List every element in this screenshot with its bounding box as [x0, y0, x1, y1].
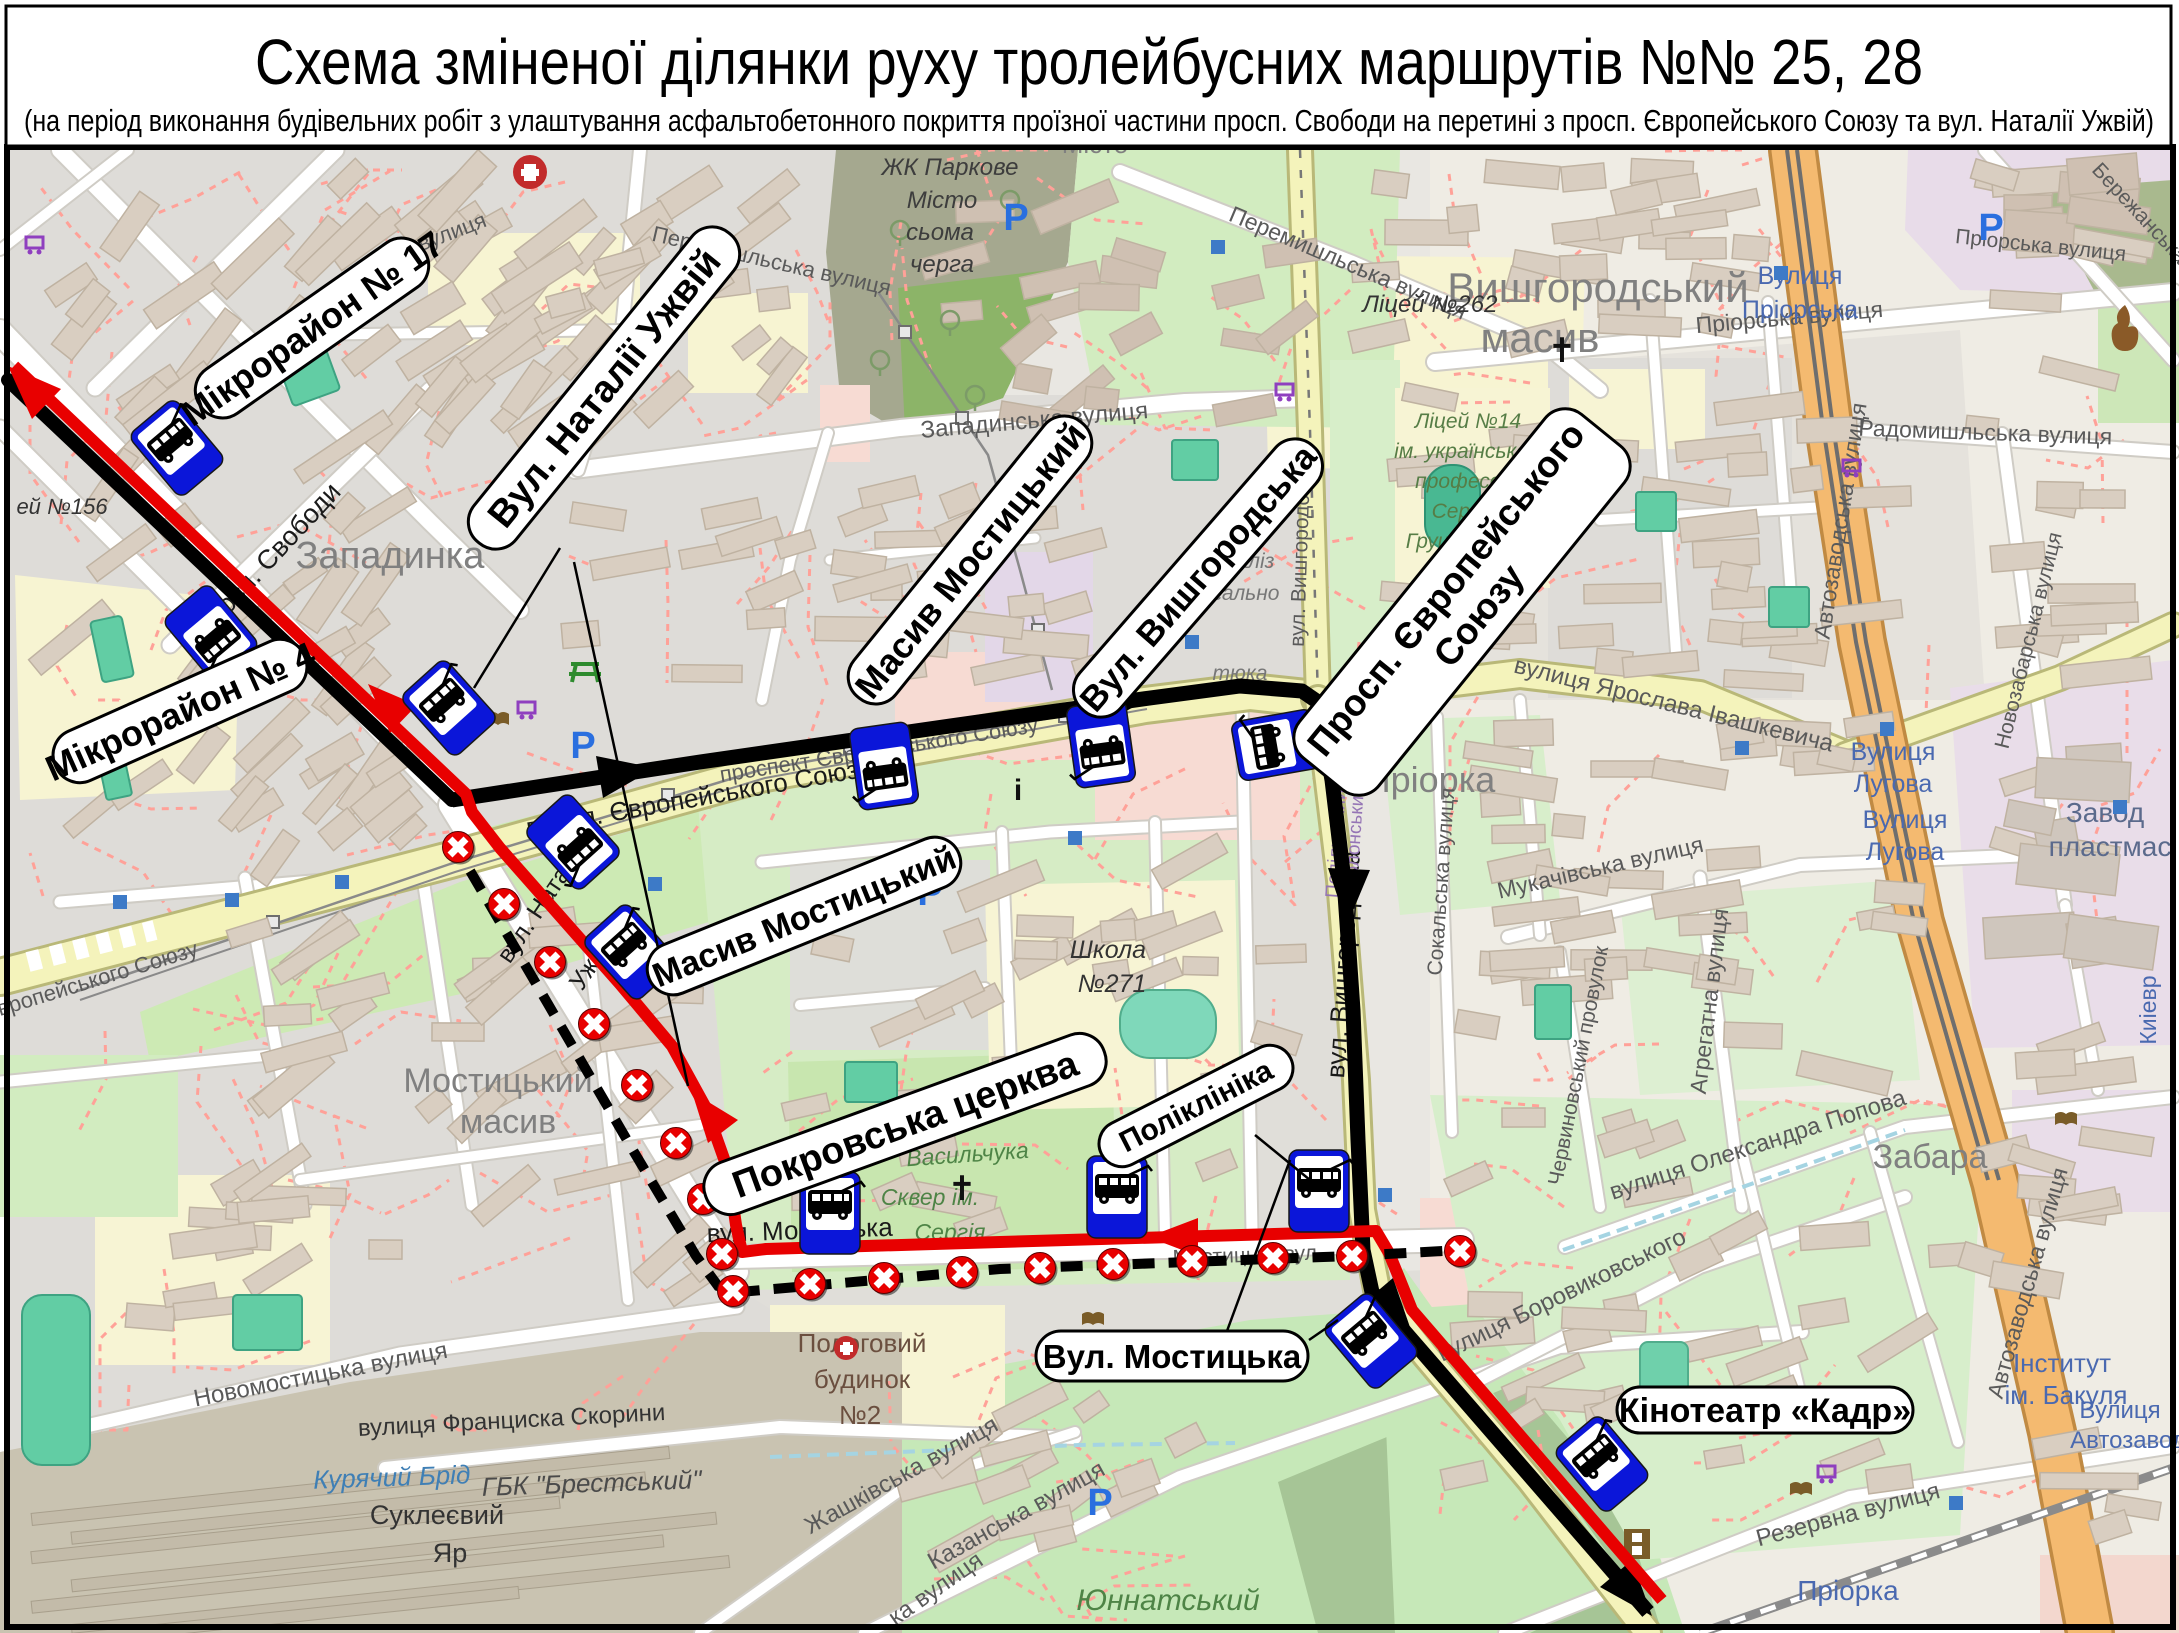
svg-text:Пріорська: Пріорська	[1742, 296, 1858, 324]
svg-text:i: i	[1014, 774, 1022, 807]
svg-text:P: P	[1087, 1482, 1112, 1524]
svg-text:(на період виконання будівельн: (на період виконання будівельних робіт з…	[24, 103, 2154, 138]
svg-text:Пологовий: Пологовий	[798, 1328, 927, 1358]
svg-text:Лугова: Лугова	[1866, 838, 1945, 866]
svg-text:№2: №2	[839, 1400, 881, 1430]
svg-text:Юннатський: Юннатський	[1076, 1584, 1260, 1617]
svg-text:Вулиця: Вулиця	[1758, 262, 1843, 290]
svg-text:P: P	[1978, 207, 2003, 249]
svg-text:Лугова: Лугова	[1854, 770, 1933, 798]
svg-text:Схема зміненої ділянки руху тр: Схема зміненої ділянки руху тролейбусних…	[255, 26, 1923, 98]
svg-text:Ліцей №14: Ліцей №14	[1413, 410, 1521, 433]
svg-text:пластмас: пластмас	[2049, 831, 2172, 862]
svg-text:Западинка: Западинка	[296, 535, 486, 577]
svg-text:P: P	[570, 725, 595, 767]
svg-text:Вулиця: Вулиця	[2079, 1397, 2160, 1424]
svg-text:будинок: будинок	[814, 1364, 911, 1394]
svg-text:✝: ✝	[948, 1170, 977, 1208]
svg-text:Ліцей №262: Ліцей №262	[1361, 291, 1498, 318]
svg-text:Вулиця: Вулиця	[1851, 738, 1936, 766]
svg-text:масив: масив	[1480, 314, 1599, 361]
svg-text:Місто: Місто	[907, 187, 977, 214]
svg-text:Завод: Завод	[2066, 797, 2144, 828]
svg-text:Вулиця: Вулиця	[1863, 806, 1948, 834]
svg-text:сьома: сьома	[906, 219, 974, 246]
svg-text:черга: черга	[910, 251, 974, 278]
svg-text:✝: ✝	[1548, 332, 1577, 370]
svg-text:Кінотеатр «Кадр»: Кінотеатр «Кадр»	[1619, 1392, 1911, 1430]
svg-text:Мостицький: Мостицький	[403, 1062, 592, 1100]
svg-text:Забара: Забара	[1873, 1138, 1988, 1176]
svg-text:№271: №271	[1078, 970, 1147, 998]
svg-text:ЖК Паркове: ЖК Паркове	[881, 154, 1019, 181]
svg-text:Киіевр: Киіевр	[2135, 975, 2161, 1044]
svg-text:Школа: Школа	[1070, 936, 1146, 964]
svg-text:P: P	[1003, 197, 1028, 239]
svg-text:ей №156: ей №156	[16, 494, 108, 519]
svg-text:Автозавод: Автозавод	[2070, 1427, 2179, 1454]
svg-text:Суклеєвий: Суклеєвий	[370, 1500, 504, 1530]
svg-text:Курячий Брід: Курячий Брід	[313, 1459, 471, 1494]
svg-text:Інститут: Інститут	[2013, 1348, 2111, 1378]
svg-text:Яр: Яр	[433, 1538, 468, 1568]
svg-text:Вул. Мостицька: Вул. Мостицька	[1043, 1338, 1302, 1375]
svg-text:масив: масив	[460, 1103, 556, 1141]
svg-text:Пріорка: Пріорка	[1797, 1575, 1899, 1606]
